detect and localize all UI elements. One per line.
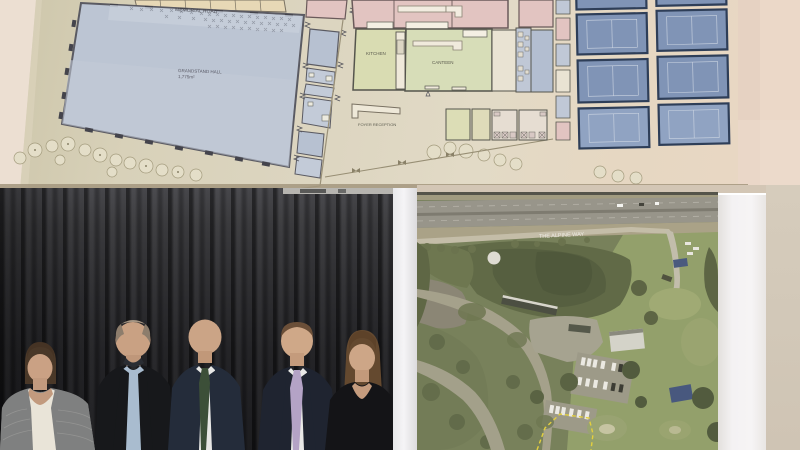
svg-text:CANTEEN: CANTEEN (432, 60, 454, 65)
svg-text:KITCHEN: KITCHEN (366, 51, 386, 56)
svg-text:1,775m²: 1,775m² (178, 74, 195, 80)
svg-text:FOYER RECEPTION: FOYER RECEPTION (358, 122, 396, 127)
